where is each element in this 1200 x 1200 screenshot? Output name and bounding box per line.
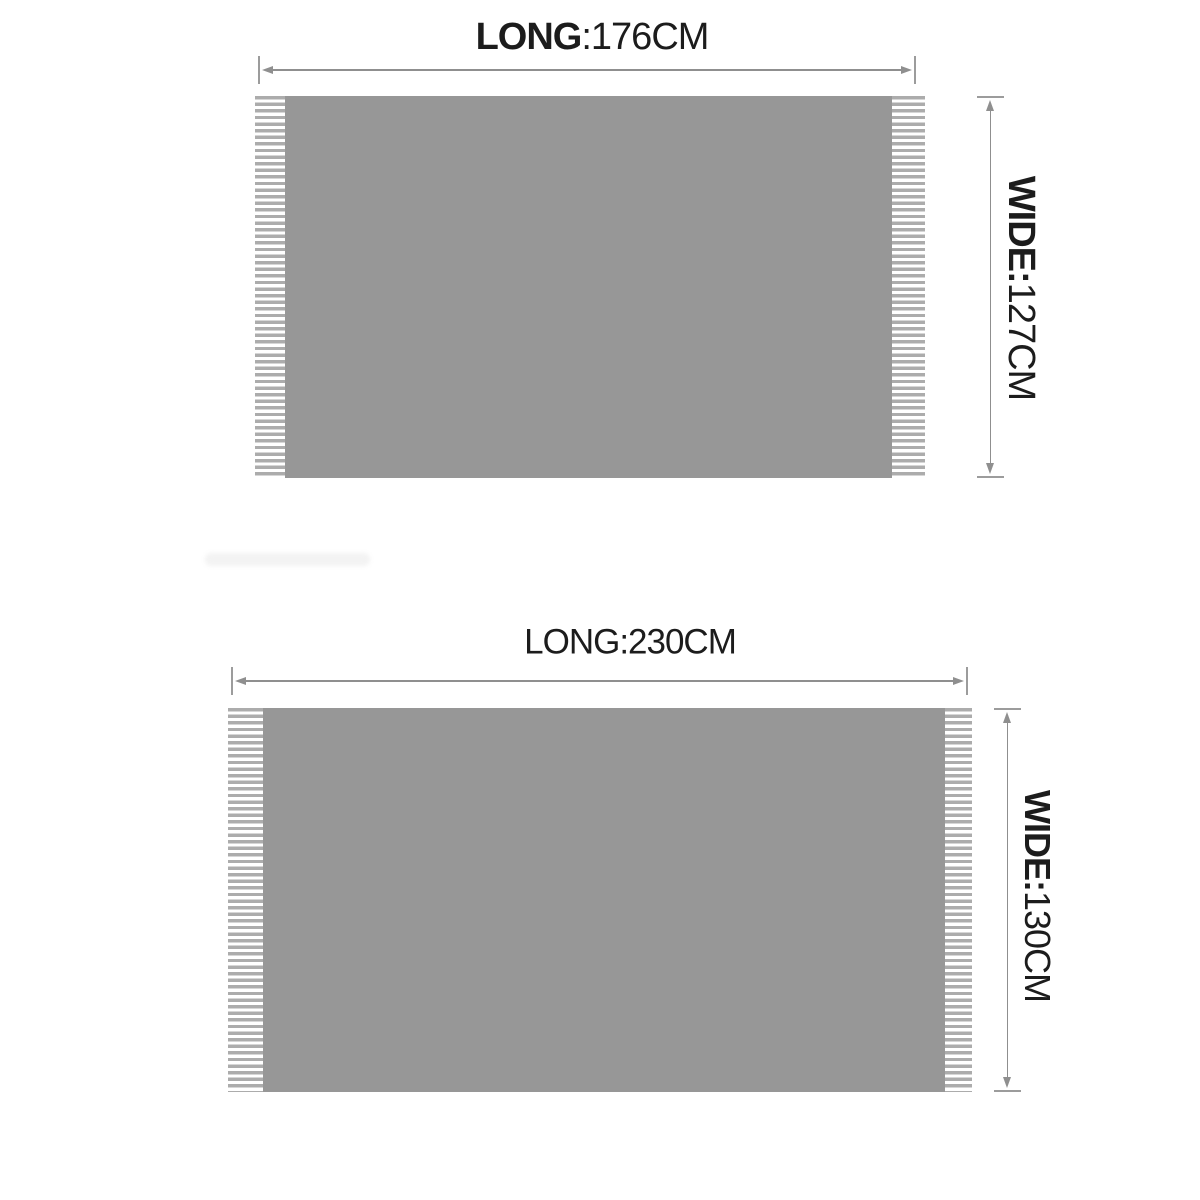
top-length-dimension-line <box>258 56 916 84</box>
top-width-label: WIDE:127CM <box>1002 176 1040 400</box>
top-width-label-value: 127CM <box>1000 283 1042 401</box>
bottom-blanket-body <box>263 708 945 1092</box>
dimension-tick <box>994 708 1021 710</box>
dimension-tick <box>258 56 260 84</box>
arrow-up-icon <box>986 100 994 111</box>
top-width-label-keyword: WIDE: <box>1000 176 1042 283</box>
arrow-right-icon <box>953 677 964 685</box>
top-blanket-right-fringe <box>892 96 925 478</box>
arrow-down-icon <box>1003 1077 1011 1088</box>
dimension-tick <box>966 667 968 695</box>
dimension-line <box>240 680 959 682</box>
top-length-label: LONG:176CM <box>476 18 709 56</box>
top-blanket-body <box>285 96 892 478</box>
arrow-down-icon <box>986 463 994 474</box>
bottom-blanket-right-fringe <box>945 708 972 1092</box>
arrow-left-icon <box>235 677 246 685</box>
bottom-width-label: WIDE:130CM <box>1019 790 1055 1002</box>
top-length-label-value: :176CM <box>581 16 708 58</box>
bottom-blanket-left-fringe <box>228 708 263 1092</box>
top-blanket-graphic <box>255 96 925 478</box>
dimension-tick <box>231 667 233 695</box>
dimension-tick <box>977 96 1004 98</box>
bottom-width-label-keyword: WIDE: <box>1017 790 1058 891</box>
bottom-width-label-value: 130CM <box>1017 891 1058 1002</box>
bottom-length-label-value: LONG:230CM <box>524 623 736 662</box>
dimension-line <box>1007 717 1009 1083</box>
bottom-length-label: LONG:230CM <box>524 625 736 660</box>
arrow-left-icon <box>262 66 273 74</box>
dimension-tick <box>977 476 1004 478</box>
arrow-up-icon <box>1003 712 1011 723</box>
dimension-tick <box>914 56 916 84</box>
dimension-tick <box>994 1090 1021 1092</box>
faint-watermark-smudge <box>205 553 370 566</box>
arrow-right-icon <box>901 66 912 74</box>
blanket-size-chart: LONG:176CM WIDE:127CM LONG:230CM <box>0 0 1200 1200</box>
top-blanket-left-fringe <box>255 96 285 478</box>
bottom-blanket-graphic <box>228 708 972 1092</box>
top-length-label-keyword: LONG <box>476 16 582 58</box>
bottom-length-dimension-line <box>231 667 968 695</box>
dimension-line <box>267 69 907 71</box>
dimension-line <box>990 105 992 469</box>
